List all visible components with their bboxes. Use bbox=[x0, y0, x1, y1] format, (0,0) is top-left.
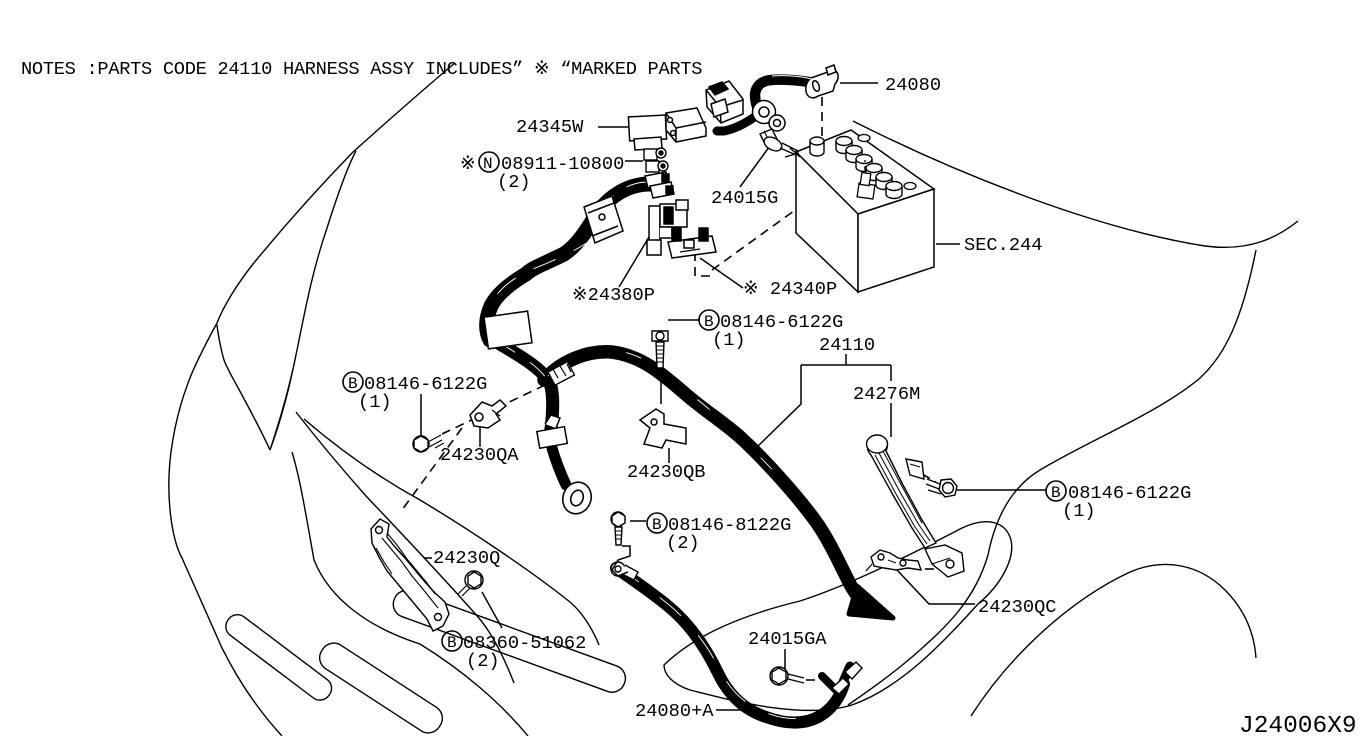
svg-text:(1): (1) bbox=[358, 391, 392, 413]
svg-text:24015GA: 24015GA bbox=[748, 628, 827, 650]
svg-text:N: N bbox=[483, 155, 493, 173]
svg-text:B: B bbox=[348, 375, 358, 393]
svg-text:(2): (2) bbox=[497, 171, 531, 193]
svg-text:J24006X9: J24006X9 bbox=[1239, 713, 1357, 736]
svg-text:24230QC: 24230QC bbox=[978, 596, 1057, 618]
svg-text:24230QB: 24230QB bbox=[627, 461, 706, 483]
svg-text:B: B bbox=[1051, 484, 1061, 502]
svg-text:NOTES :PARTS CODE 24110 HARNES: NOTES :PARTS CODE 24110 HARNESS ASSY INC… bbox=[21, 58, 702, 80]
svg-text:(2): (2) bbox=[466, 650, 500, 672]
svg-text:24230Q: 24230Q bbox=[433, 547, 500, 569]
svg-text:SEC.244: SEC.244 bbox=[964, 234, 1043, 256]
svg-text:※: ※ bbox=[460, 153, 476, 175]
svg-text:※24380P: ※24380P bbox=[572, 284, 655, 306]
svg-text:24110: 24110 bbox=[819, 334, 875, 356]
svg-text:(2): (2) bbox=[666, 532, 700, 554]
svg-text:B: B bbox=[652, 516, 662, 534]
svg-text:B: B bbox=[447, 634, 457, 652]
svg-text:24345W: 24345W bbox=[516, 116, 584, 138]
svg-text:24080+A: 24080+A bbox=[635, 700, 714, 722]
svg-text:24015G: 24015G bbox=[711, 187, 778, 209]
svg-text:24230QA: 24230QA bbox=[440, 444, 519, 466]
svg-text:24276M: 24276M bbox=[853, 383, 920, 405]
svg-text:(1): (1) bbox=[1062, 500, 1096, 522]
svg-text:※ 24340P: ※ 24340P bbox=[743, 278, 837, 300]
svg-text:(1): (1) bbox=[712, 329, 746, 351]
svg-text:24080: 24080 bbox=[885, 74, 941, 96]
